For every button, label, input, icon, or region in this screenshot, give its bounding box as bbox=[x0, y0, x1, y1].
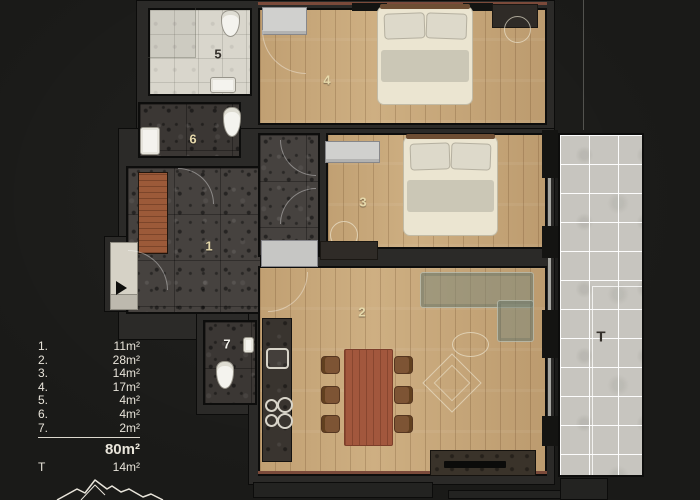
legend-num: 2. bbox=[38, 354, 48, 368]
legend-value: 14m² bbox=[113, 367, 140, 381]
blanket bbox=[381, 50, 469, 82]
chair bbox=[321, 356, 340, 374]
chair bbox=[321, 415, 340, 433]
cooktop-icon bbox=[264, 396, 292, 434]
sink-icon bbox=[210, 77, 236, 93]
closet bbox=[261, 240, 318, 267]
pillow bbox=[425, 12, 466, 40]
wall-pillar bbox=[542, 416, 558, 446]
legend-row: 7. 2m² bbox=[38, 422, 140, 436]
tv-icon bbox=[444, 461, 506, 468]
legend-value: 4m² bbox=[119, 394, 140, 408]
legend-value: 11m² bbox=[114, 340, 140, 354]
kitchen-sink-icon bbox=[266, 348, 289, 369]
chair bbox=[394, 386, 413, 404]
room-label-terrace: T bbox=[596, 329, 605, 346]
legend-num: 7. bbox=[38, 422, 48, 436]
legend-row: 5. 4m² bbox=[38, 394, 140, 408]
legend-value: 28m² bbox=[113, 354, 140, 368]
wardrobe bbox=[138, 172, 168, 254]
room-label-4: 4 bbox=[323, 73, 330, 88]
entry-threshold bbox=[110, 294, 138, 310]
sink-icon bbox=[140, 127, 160, 155]
dining-table bbox=[344, 349, 393, 446]
legend-row: 6. 4m² bbox=[38, 408, 140, 422]
blanket bbox=[407, 180, 494, 212]
room-label-3: 3 bbox=[359, 195, 366, 210]
sink-icon bbox=[243, 337, 254, 353]
legend-total-area: 80m² bbox=[38, 441, 140, 458]
legend-num: 6. bbox=[38, 408, 48, 422]
dresser bbox=[325, 141, 380, 163]
area-legend: 1. 11m² 2. 28m² 3. 14m² 4. 17m² 5. 4m² 6… bbox=[38, 340, 140, 475]
window-glass-line bbox=[548, 358, 551, 416]
legend-row: 3. 14m² bbox=[38, 367, 140, 381]
legend-num: 5. bbox=[38, 394, 48, 408]
legend-num: 4. bbox=[38, 381, 48, 395]
legend-row: 2. 28m² bbox=[38, 354, 140, 368]
legend-terrace-row: T 14m² bbox=[38, 461, 140, 475]
legend-num: T bbox=[38, 461, 45, 475]
pillow bbox=[451, 142, 492, 170]
kitchen-counter bbox=[262, 318, 292, 462]
headboard bbox=[406, 134, 495, 139]
chair-outline bbox=[504, 16, 531, 43]
headboard bbox=[380, 4, 470, 9]
wall-pillar bbox=[542, 130, 558, 178]
exterior-wall-fragment bbox=[253, 482, 433, 498]
wall-pillar bbox=[542, 310, 558, 358]
mountain-logo bbox=[55, 477, 165, 500]
entry-arrow-icon bbox=[116, 281, 127, 295]
room-label-5: 5 bbox=[214, 47, 221, 62]
room-label-1: 1 bbox=[205, 239, 212, 254]
room-label-7: 7 bbox=[223, 337, 230, 352]
pillow bbox=[383, 12, 424, 40]
floor-plan: T bbox=[0, 0, 700, 500]
legend-row: 4. 17m² bbox=[38, 381, 140, 395]
legend-num: 3. bbox=[38, 367, 48, 381]
wall-pillar bbox=[542, 226, 558, 258]
rug-outline-inner bbox=[434, 365, 470, 401]
legend-row: 1. 11m² bbox=[38, 340, 140, 354]
double-bed bbox=[403, 136, 498, 236]
shower-area bbox=[148, 8, 196, 58]
rug bbox=[320, 241, 378, 260]
chair bbox=[394, 356, 413, 374]
legend-divider bbox=[38, 437, 140, 438]
chair bbox=[394, 415, 413, 433]
sofa-chaise bbox=[497, 300, 534, 342]
chair bbox=[321, 386, 340, 404]
legend-value: 17m² bbox=[113, 381, 140, 395]
legend-value: 14m² bbox=[113, 461, 140, 475]
terrace-step-outline bbox=[592, 286, 642, 475]
legend-value: 2m² bbox=[119, 422, 140, 436]
property-boundary-line bbox=[583, 0, 584, 130]
room-label-2: 2 bbox=[358, 305, 365, 320]
window-glass-line bbox=[548, 178, 551, 226]
legend-value: 4m² bbox=[119, 408, 140, 422]
pillow bbox=[409, 142, 450, 170]
window-glass-line bbox=[548, 258, 551, 310]
coffee-table-outline bbox=[452, 332, 489, 357]
legend-num: 1. bbox=[38, 340, 48, 354]
room-label-6: 6 bbox=[189, 132, 196, 147]
double-bed bbox=[377, 6, 473, 105]
exterior-wall-fragment bbox=[560, 478, 608, 500]
